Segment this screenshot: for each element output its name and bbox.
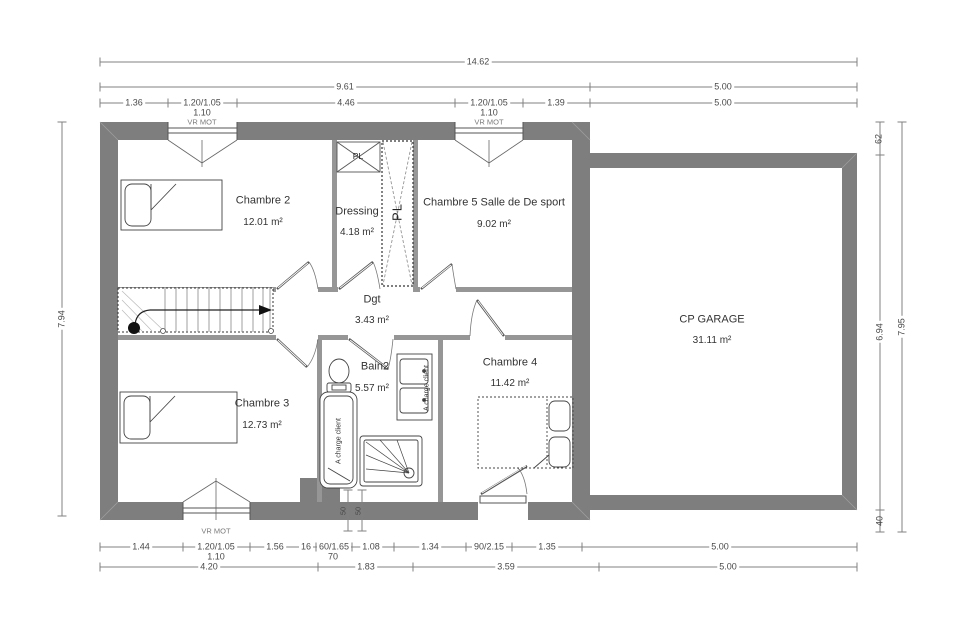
dim-bot-window: 1.20/1.05 [195, 543, 237, 552]
room-area-bain2: 5.57 m² [355, 384, 389, 394]
floor-plan-page: 14.62 9.61 5.00 1.36 1.20/1.05 1.10 VR M… [0, 0, 960, 620]
vr-mot-label-bottom: VR MOT [199, 527, 232, 535]
room-label-garage: CP GARAGE [679, 315, 744, 326]
dim-garage-width-top: 5.00 [712, 83, 734, 92]
dim-bot2-2: 1.83 [355, 563, 377, 572]
dim-bot-4-sub: 70 [326, 553, 340, 562]
dim-top-window2-sub: 1.10 [478, 109, 500, 118]
dim-top-window1: 1.20/1.05 [181, 99, 223, 108]
vr-mot-label-top-right: VR MOT [472, 118, 505, 126]
closet-pl-box-label: PL [353, 152, 363, 161]
room-label-dressing: Dressing [335, 207, 378, 218]
sink-note: A charge client [424, 365, 431, 411]
dim-bot-5: 1.08 [360, 543, 382, 552]
room-label-dgt: Dgt [363, 295, 380, 306]
room-label-bain2: Bain2 [361, 362, 389, 373]
dim-bot-2: 1.56 [264, 543, 286, 552]
dim-top-garage: 5.00 [712, 99, 734, 108]
room-area-garage: 31.11 m² [693, 336, 732, 346]
bed-chambre4 [478, 397, 573, 468]
dim-bot-1: 1.44 [130, 543, 152, 552]
closet-pl-column-label: PL [391, 203, 404, 221]
window-top-chambre2 [168, 122, 237, 167]
dim-step-50a: 50 [339, 507, 347, 515]
dim-right-795: 7.95 [898, 316, 907, 338]
room-area-chambre5: 9.02 m² [477, 220, 511, 230]
dim-overall-width: 14.62 [465, 58, 492, 67]
dim-bot-garage: 5.00 [709, 543, 731, 552]
dim-bot2-3: 3.59 [495, 563, 517, 572]
room-label-chambre3: Chambre 3 [235, 399, 289, 410]
dim-bot2-4: 5.00 [717, 563, 739, 572]
dim-bot-4: 60/1.65 [317, 543, 351, 552]
bed-chambre2 [121, 180, 222, 230]
dim-left-height: 7.94 [58, 308, 67, 330]
room-label-chambre2: Chambre 2 [236, 196, 290, 207]
dim-bot2-1: 4.20 [198, 563, 220, 572]
dim-top-window2: 1.20/1.05 [468, 99, 510, 108]
dim-bot-7: 90/2.15 [472, 543, 506, 552]
room-area-dressing: 4.18 m² [340, 228, 374, 238]
staircase [118, 288, 274, 334]
french-window-chambre4 [478, 466, 528, 520]
room-area-chambre3: 12.73 m² [242, 421, 281, 431]
dim-top-2: 4.46 [335, 99, 357, 108]
room-area-chambre4: 11.42 m² [491, 379, 530, 389]
floor-plan-drawing [0, 0, 960, 620]
room-area-chambre2: 12.01 m² [243, 218, 282, 228]
dim-top-1: 1.36 [123, 99, 145, 108]
bed-chambre3 [120, 392, 237, 443]
shower [360, 436, 422, 486]
dim-top-3: 1.39 [545, 99, 567, 108]
window-bottom-chambre3 [183, 478, 250, 520]
dim-bot-6: 1.34 [419, 543, 441, 552]
room-label-chambre5: Chambre 5 Salle de De sport [423, 198, 565, 209]
vr-mot-label-top-left: VR MOT [185, 118, 218, 126]
dim-bot-3: 16 [299, 543, 313, 552]
bathtub-note: A charge client [336, 418, 343, 464]
dim-top-window1-sub: 1.10 [191, 109, 213, 118]
dim-house-width: 9.61 [334, 83, 356, 92]
dim-step-50b: 50 [354, 507, 362, 515]
dim-right-62: 62 [875, 132, 884, 146]
dim-bot-8: 1.35 [536, 543, 558, 552]
room-label-chambre4: Chambre 4 [483, 358, 537, 369]
dim-bot-window-sub: 1.10 [205, 553, 227, 562]
toilet [327, 359, 351, 392]
dim-right-694: 6.94 [876, 321, 885, 343]
room-area-dgt: 3.43 m² [355, 316, 389, 326]
window-top-chambre5 [455, 122, 523, 167]
dim-right-40: 40 [876, 514, 885, 528]
